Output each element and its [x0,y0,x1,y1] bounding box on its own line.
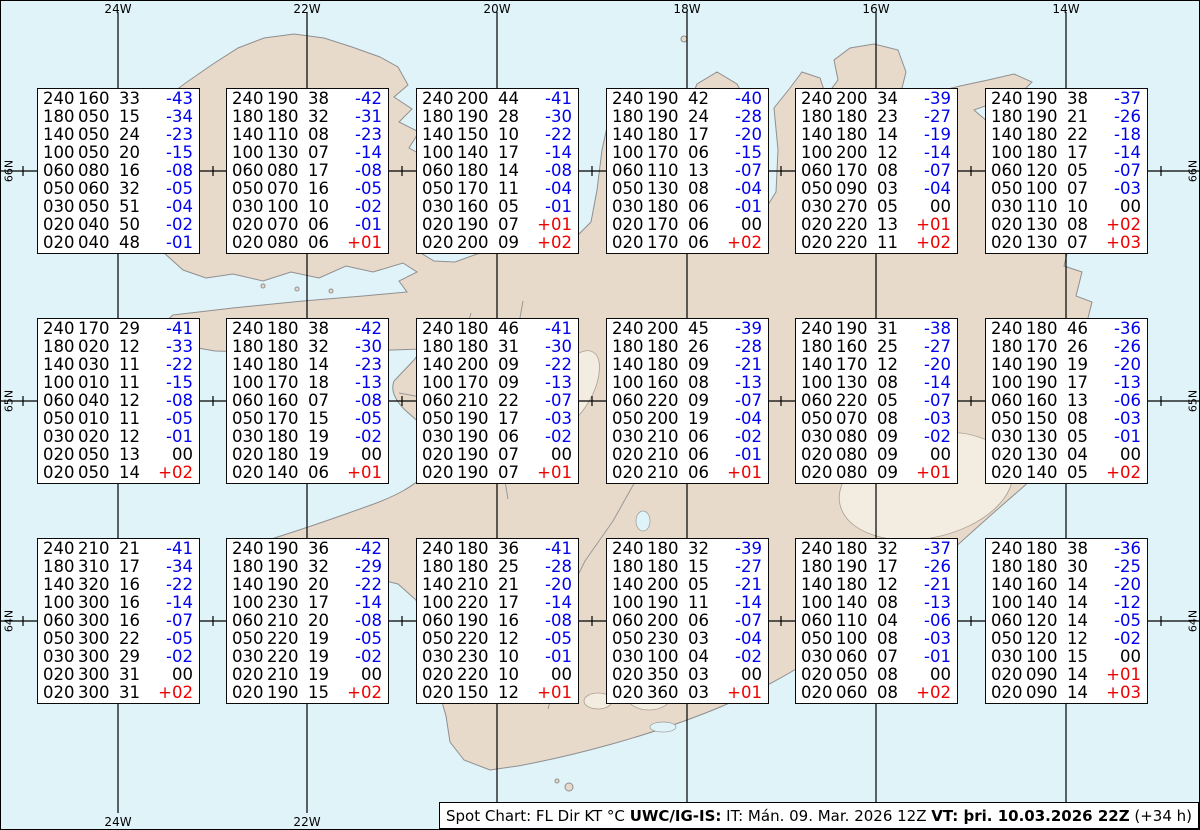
wind-speed: 31 [498,338,520,356]
latitude-label-right: 64N [1187,610,1200,632]
wind-speed: 12 [498,684,520,702]
wind-direction: 210 [647,428,680,446]
flight-level-row: 05010008-03 [801,630,951,648]
caption-bar: Spot Chart: FL Dir KT °C UWC/IG-IS: IT: … [439,802,1199,829]
temperature: -01 [545,648,572,666]
flight-level-row: 03018019-02 [232,428,382,446]
wind-direction: 170 [836,356,869,374]
flight-level: 240 [612,540,647,558]
flight-level-row: 18018023-27 [801,108,951,126]
station-data-box-66N-24W: 24016033-4318005015-3414005024-231000502… [37,88,200,254]
flight-level-row: 0200800900 [801,446,951,464]
flight-level-row: 0200500800 [801,666,951,684]
flight-level: 140 [612,356,647,374]
temperature: 00 [361,666,382,684]
wind-direction: 180 [836,576,869,594]
flight-level: 020 [43,234,78,252]
wind-direction: 190 [267,540,300,558]
wind-speed: 05 [688,576,710,594]
wind-direction: 190 [267,558,300,576]
flight-level-row: 24017029-41 [43,320,193,338]
wind-direction: 180 [267,320,300,338]
flight-level-row: 03013005-01 [991,428,1141,446]
wind-direction: 020 [78,338,111,356]
flight-level-row: 10014008-13 [801,594,951,612]
flight-level-row: 0201900700 [422,446,572,464]
flight-level: 060 [232,392,267,410]
wind-direction: 060 [78,180,111,198]
wind-direction: 200 [457,90,490,108]
flight-level-row: 02019007+01 [422,464,572,482]
temperature: -01 [355,216,382,234]
flight-level: 100 [801,144,836,162]
flight-level: 030 [232,198,267,216]
island-small [295,287,299,291]
wind-direction: 180 [1026,540,1059,558]
temperature: -01 [166,428,193,446]
wind-direction: 160 [457,198,490,216]
flight-level-row: 24018032-39 [612,540,762,558]
wind-speed: 08 [877,630,899,648]
flight-level: 060 [612,392,647,410]
flight-level: 060 [612,162,647,180]
temperature: -05 [166,180,193,198]
flight-level-row: 03022019-02 [232,648,382,666]
flight-level: 240 [232,90,267,108]
wind-direction: 350 [647,666,680,684]
wind-speed: 20 [308,612,330,630]
flight-level-row: 02006008+02 [801,684,951,702]
wind-speed: 22 [498,392,520,410]
flight-level: 240 [232,540,267,558]
flight-level: 100 [43,374,78,392]
temperature: +02 [158,684,193,702]
flight-level: 020 [612,216,647,234]
wind-direction: 160 [1026,576,1059,594]
temperature: +01 [537,684,572,702]
temperature: -06 [924,612,951,630]
temperature: -33 [166,338,193,356]
flight-level-row: 10014014-12 [991,594,1141,612]
wind-speed: 07 [1067,180,1089,198]
wind-speed: 19 [1067,356,1089,374]
flight-level-row: 24020044-41 [422,90,572,108]
temperature: +01 [916,216,951,234]
flight-level: 020 [422,464,457,482]
wind-speed: 22 [1067,126,1089,144]
flight-level: 020 [43,446,78,464]
flight-level-row: 05030022-05 [43,630,193,648]
wind-speed: 09 [498,234,520,252]
temperature: -39 [735,540,762,558]
island-small [329,289,333,293]
flight-level: 060 [991,162,1026,180]
flight-level-row: 02019007+01 [422,216,572,234]
flight-level: 020 [232,216,267,234]
flight-level-row: 05013008-04 [612,180,762,198]
wind-direction: 300 [78,594,111,612]
wind-direction: 050 [78,108,111,126]
wind-speed: 32 [119,180,141,198]
wind-direction: 180 [647,540,680,558]
wind-direction: 100 [267,198,300,216]
flight-level: 180 [612,108,647,126]
temperature: 00 [741,666,762,684]
temperature: -02 [924,428,951,446]
wind-speed: 08 [877,684,899,702]
wind-speed: 05 [877,392,899,410]
flight-level-row: 02017006+02 [612,234,762,252]
temperature: -39 [924,90,951,108]
flight-level-row: 18018032-31 [232,108,382,126]
temperature: -02 [355,198,382,216]
flight-level-row: 05001011-05 [43,410,193,428]
wind-speed: 13 [688,162,710,180]
flight-level-row: 02013007+03 [991,234,1141,252]
flight-level-row: 24021021-41 [43,540,193,558]
temperature: -27 [924,108,951,126]
wind-direction: 190 [1026,108,1059,126]
flight-level: 180 [43,338,78,356]
temperature: -07 [924,392,951,410]
temperature: -30 [545,338,572,356]
wind-direction: 190 [647,594,680,612]
flight-level: 180 [43,108,78,126]
flight-level-row: 06012014-05 [991,612,1141,630]
flight-level-row: 06018014-08 [422,162,572,180]
wind-direction: 200 [647,410,680,428]
wind-direction: 130 [647,180,680,198]
wind-direction: 200 [836,144,869,162]
flight-level: 060 [43,162,78,180]
flight-level-row: 0203500300 [612,666,762,684]
flight-level: 180 [422,108,457,126]
wind-speed: 08 [688,180,710,198]
flight-level-row: 05007008-03 [801,410,951,428]
flight-level: 020 [801,464,836,482]
wind-speed: 19 [308,630,330,648]
wind-direction: 130 [836,374,869,392]
flight-level: 020 [801,684,836,702]
temperature: +02 [347,684,382,702]
flight-level: 240 [422,320,457,338]
temperature: +01 [347,464,382,482]
wind-speed: 16 [119,594,141,612]
wind-direction: 180 [267,356,300,374]
wind-speed: 38 [1067,90,1089,108]
wind-speed: 17 [498,144,520,162]
flight-level-row: 14018022-18 [991,126,1141,144]
temperature: -05 [166,630,193,648]
temperature: -08 [355,162,382,180]
flight-level: 030 [43,198,78,216]
wind-speed: 05 [877,198,899,216]
wind-direction: 140 [836,594,869,612]
station-data-box-64N-14W: 24018038-3618018030-2514016014-201001401… [985,538,1148,704]
temperature: -08 [545,162,572,180]
temperature: -34 [166,558,193,576]
flight-level: 100 [43,144,78,162]
wind-speed: 19 [308,648,330,666]
temperature: -01 [924,648,951,666]
temperature: -04 [166,198,193,216]
wind-direction: 160 [647,374,680,392]
flight-level-row: 02014006+01 [232,464,382,482]
wind-speed: 21 [1067,108,1089,126]
temperature: -08 [545,612,572,630]
flight-level: 140 [422,126,457,144]
flight-level: 180 [801,338,836,356]
flight-level-row: 05020019-04 [612,410,762,428]
wind-speed: 08 [308,126,330,144]
wind-direction: 050 [78,446,111,464]
wind-direction: 080 [267,234,300,252]
wind-speed: 16 [119,612,141,630]
temperature: -07 [924,162,951,180]
wind-direction: 190 [457,410,490,428]
longitude-label-top: 20W [483,2,510,16]
wind-direction: 180 [836,540,869,558]
station-data-box-64N-18W: 24018032-3918018015-2714020005-211001901… [606,538,769,704]
wind-direction: 190 [457,428,490,446]
flight-level-row: 0201300400 [991,446,1141,464]
temperature: -29 [355,558,382,576]
wind-direction: 050 [78,464,111,482]
flight-level: 020 [232,464,267,482]
temperature: +02 [1106,216,1141,234]
temperature: +01 [537,464,572,482]
flight-level-row: 03016005-01 [422,198,572,216]
flight-level-row: 06011013-07 [612,162,762,180]
flight-level-row: 02022011+02 [801,234,951,252]
wind-direction: 190 [647,90,680,108]
temperature: -15 [735,144,762,162]
station-data-box-66N-18W: 24019042-4018019024-2814018017-201001700… [606,88,769,254]
wind-direction: 110 [836,612,869,630]
flight-level: 020 [801,234,836,252]
flight-level-row: 10017009-13 [422,374,572,392]
wind-direction: 170 [457,180,490,198]
wind-direction: 320 [78,576,111,594]
flight-level-row: 24018032-37 [801,540,951,558]
wind-direction: 190 [457,446,490,464]
wind-speed: 08 [877,162,899,180]
flight-level-row: 02005014+02 [43,464,193,482]
longitude-label-bottom: 22W [293,815,320,829]
flight-level: 030 [422,648,457,666]
flight-level-row: 24018046-36 [991,320,1141,338]
wind-speed: 32 [308,558,330,576]
flight-level: 050 [801,180,836,198]
flight-level-row: 10020012-14 [801,144,951,162]
station-data-box-66N-14W: 24019038-3718019021-2614018022-181001801… [985,88,1148,254]
temperature: -21 [735,576,762,594]
wind-direction: 160 [267,392,300,410]
temperature: -05 [355,180,382,198]
flight-level: 180 [232,338,267,356]
flight-level: 100 [232,144,267,162]
wind-direction: 170 [836,162,869,180]
wind-direction: 170 [457,374,490,392]
wind-speed: 32 [308,338,330,356]
wind-speed: 26 [688,338,710,356]
wind-speed: 17 [1067,374,1089,392]
flight-level-row: 05022019-05 [232,630,382,648]
wind-direction: 150 [1026,410,1059,428]
wind-speed: 08 [1067,216,1089,234]
flight-level: 030 [991,648,1026,666]
wind-speed: 07 [877,648,899,666]
wind-speed: 23 [877,108,899,126]
flight-level-row: 0201801900 [232,446,382,464]
wind-direction: 080 [267,162,300,180]
temperature: -36 [1114,320,1141,338]
wind-speed: 31 [119,684,141,702]
flight-level-row: 18031017-34 [43,558,193,576]
temperature: -28 [735,108,762,126]
flight-level: 020 [612,464,647,482]
flight-level-row: 18005015-34 [43,108,193,126]
wind-direction: 180 [457,540,490,558]
flight-level: 030 [612,428,647,446]
wind-speed: 46 [498,320,520,338]
caption-product: UWC/IG-IS: [630,807,722,825]
wind-speed: 31 [119,666,141,684]
flight-level-row: 14018012-21 [801,576,951,594]
temperature: -21 [924,576,951,594]
flight-level: 020 [991,464,1026,482]
temperature: -13 [355,374,382,392]
latitude-label-left: 66N [3,160,16,182]
wind-speed: 12 [498,630,520,648]
wind-direction: 300 [78,684,111,702]
flight-level-row: 10014017-14 [422,144,572,162]
flight-level: 240 [232,320,267,338]
flight-level: 060 [43,612,78,630]
temperature: -02 [355,428,382,446]
flight-level: 050 [991,630,1026,648]
wind-speed: 29 [119,648,141,666]
flight-level-row: 02015012+01 [422,684,572,702]
flight-level: 240 [422,90,457,108]
wind-speed: 04 [877,612,899,630]
flight-level: 030 [43,428,78,446]
flight-level-row: 14015010-22 [422,126,572,144]
temperature: -01 [735,446,762,464]
wind-speed: 11 [877,234,899,252]
wind-speed: 25 [877,338,899,356]
temperature: -12 [1114,594,1141,612]
wind-speed: 11 [688,594,710,612]
temperature: +01 [347,234,382,252]
flight-level: 100 [422,594,457,612]
flight-level: 240 [801,320,836,338]
wind-speed: 05 [498,198,520,216]
temperature: -03 [924,630,951,648]
flight-level-row: 10017006-15 [612,144,762,162]
flight-level-row: 06021022-07 [422,392,572,410]
flight-level: 020 [991,446,1026,464]
temperature: -28 [545,558,572,576]
wind-direction: 180 [457,558,490,576]
wind-direction: 180 [647,338,680,356]
latitude-label-right: 65N [1187,390,1200,412]
flight-level: 140 [801,576,836,594]
temperature: -14 [924,374,951,392]
wind-speed: 14 [1067,666,1089,684]
wind-speed: 05 [1067,464,1089,482]
caption-valid-time: VT: þri. 10.03.2026 22Z [931,807,1129,825]
wind-direction: 040 [78,234,111,252]
temperature: -15 [166,374,193,392]
wind-direction: 210 [457,392,490,410]
wind-direction: 220 [457,666,490,684]
flight-level: 180 [422,558,457,576]
wind-direction: 180 [457,162,490,180]
wind-speed: 03 [688,630,710,648]
flight-level: 020 [801,216,836,234]
wind-speed: 14 [1067,576,1089,594]
wind-direction: 120 [1026,162,1059,180]
longitude-label-top: 22W [293,2,320,16]
wind-direction: 170 [78,320,111,338]
station-data-box-66N-20W: 24020044-4118019028-3014015010-221001401… [416,88,579,254]
wind-speed: 03 [688,684,710,702]
latitude-label-left: 65N [3,390,16,412]
latitude-label-left: 64N [3,610,16,632]
station-data-box-66N-22W: 24019038-4218018032-3114011008-231001300… [226,88,389,254]
flight-level-row: 10022017-14 [422,594,572,612]
wind-speed: 09 [877,464,899,482]
temperature: -04 [545,180,572,198]
wind-speed: 12 [877,356,899,374]
flight-level-row: 06008017-08 [232,162,382,180]
flight-level: 140 [422,356,457,374]
flight-level: 140 [232,126,267,144]
temperature: -13 [1114,374,1141,392]
wind-speed: 06 [688,464,710,482]
temperature: -14 [924,144,951,162]
wind-direction: 140 [1026,594,1059,612]
flight-level: 050 [422,180,457,198]
temperature: -20 [545,576,572,594]
flight-level: 050 [43,410,78,428]
temperature: -03 [924,410,951,428]
temperature: -14 [735,594,762,612]
wind-direction: 060 [836,648,869,666]
temperature: -43 [166,90,193,108]
wind-speed: 07 [498,446,520,464]
wind-speed: 09 [877,428,899,446]
temperature: -05 [355,630,382,648]
flight-level-row: 02020009+02 [422,234,572,252]
flight-level: 020 [612,666,647,684]
flight-level: 240 [43,320,78,338]
flight-level-row: 03002012-01 [43,428,193,446]
flight-level: 140 [43,356,78,374]
temperature: +03 [1106,684,1141,702]
flight-level: 030 [991,428,1026,446]
flight-level-row: 03008009-02 [801,428,951,446]
temperature: -22 [166,576,193,594]
wind-speed: 45 [688,320,710,338]
flight-level: 030 [991,198,1026,216]
flight-level: 050 [991,410,1026,428]
caption-title: Spot Chart: FL Dir KT °C [446,807,630,825]
wind-speed: 19 [308,666,330,684]
flight-level-row: 18018030-25 [991,558,1141,576]
flight-level: 030 [801,648,836,666]
